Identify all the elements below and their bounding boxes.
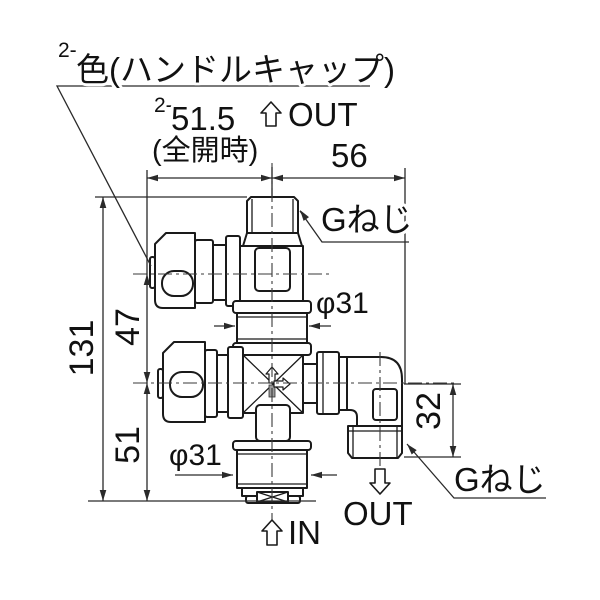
dim-upper-span: 47 bbox=[109, 308, 147, 346]
note-handle-cap: 色(ハンドルキャップ) bbox=[76, 51, 395, 88]
dim-elbow-drop: 32 bbox=[410, 392, 448, 430]
upper-handle bbox=[150, 233, 240, 308]
dia-upper-label: φ31 bbox=[316, 287, 369, 320]
flow-out-top-label: OUT bbox=[288, 96, 358, 133]
dia-lower-label: φ31 bbox=[169, 439, 222, 472]
dim-open-width-qualifier: (全開時) bbox=[152, 134, 258, 167]
thread-side-label: Gねじ bbox=[454, 461, 546, 498]
dim-open-width-prefix: 2- bbox=[154, 94, 173, 117]
upper-handle-cap-tab bbox=[150, 257, 155, 288]
flow-out-side-label: OUT bbox=[343, 495, 413, 532]
lower-handle bbox=[158, 342, 243, 422]
thread-top-label: Gねじ bbox=[321, 201, 413, 238]
lower-handle-grip-slot bbox=[170, 372, 203, 397]
dim-total-height: 131 bbox=[63, 320, 101, 377]
technical-drawing-page: 2- 色(ハンドルキャップ) 2- 51.5 (全開時) OUT 56 Gねじ … bbox=[0, 0, 600, 600]
upper-handle-grip-slot bbox=[162, 271, 193, 296]
technical-drawing-canvas: 2- 色(ハンドルキャップ) 2- 51.5 (全開時) OUT 56 Gねじ … bbox=[0, 0, 600, 600]
dim-lower-span: 51 bbox=[109, 426, 147, 464]
note-prefix: 2- bbox=[58, 39, 77, 62]
lower-neck bbox=[256, 405, 290, 441]
dim-right-width: 56 bbox=[331, 137, 368, 174]
dim-open-width-value: 51.5 bbox=[171, 100, 235, 137]
flow-in-label: IN bbox=[288, 514, 321, 551]
